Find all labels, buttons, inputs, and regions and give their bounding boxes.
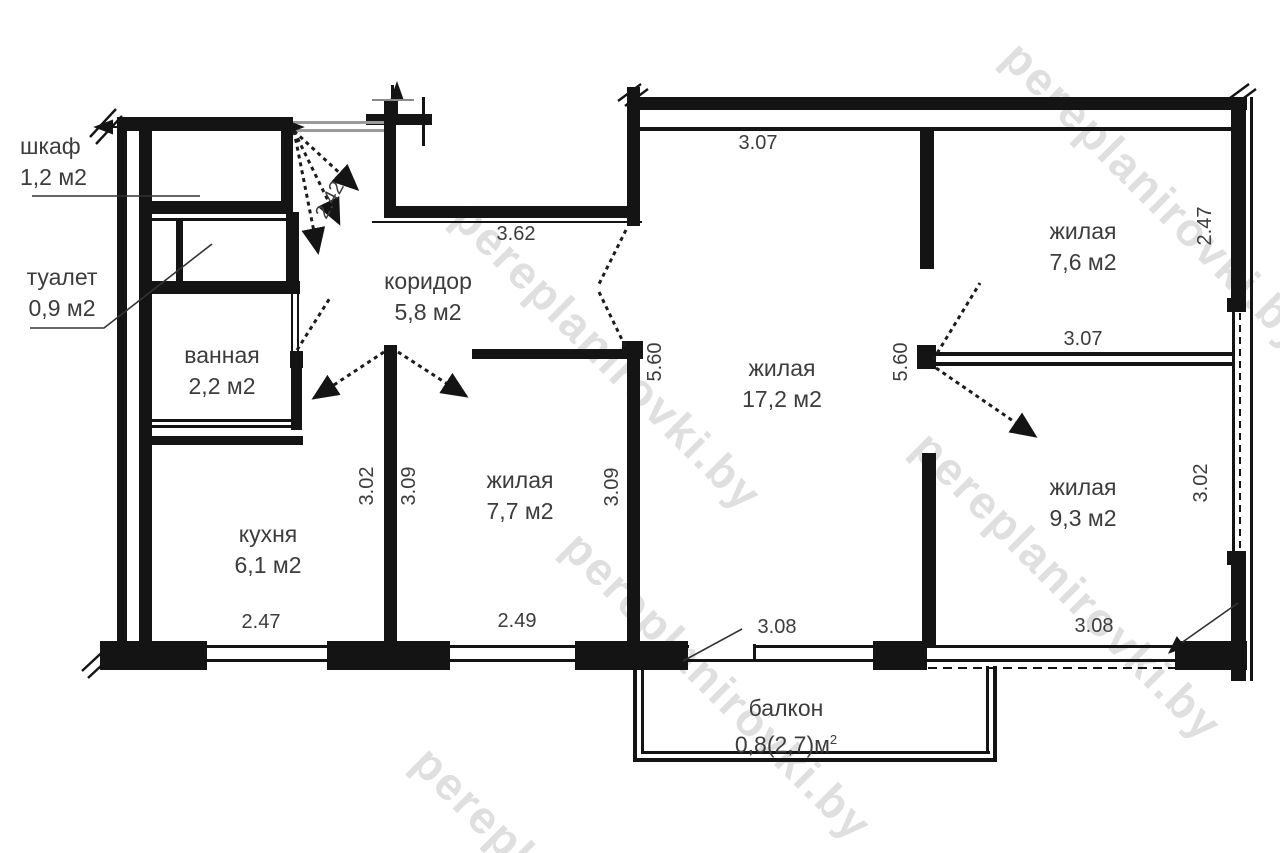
room-area: 5,8 м2 — [363, 297, 493, 328]
dim-room17-top: 3.07 — [731, 131, 785, 155]
room-label-room-17-2: жилая 17,2 м2 — [712, 353, 852, 415]
room-label-room-7-7: жилая 7,7 м2 — [455, 465, 585, 527]
room-area: 7,7 м2 — [455, 496, 585, 527]
dim-niche-width: 3.62 — [489, 222, 543, 246]
dim-room76-right: 2.47 — [1193, 199, 1217, 253]
room-area: 7,6 м2 — [1018, 247, 1148, 278]
room-area: 1,2 м2 — [20, 162, 140, 193]
floor-plan: pereplanirovki.by pereplanirovki.by pere… — [0, 0, 1280, 853]
dim-room77-right: 3.09 — [600, 460, 624, 514]
room-label-closet: шкаф 1,2 м2 — [20, 131, 140, 193]
room-label-room-9-3: жилая 9,3 м2 — [1018, 472, 1148, 534]
room-area: 17,2 м2 — [712, 384, 852, 415]
room-label-balcony: балкон 0,8(2,7)м2 — [716, 693, 856, 761]
room-area: 0,8(2,7)м2 — [716, 724, 856, 761]
room-area: 0,9 м2 — [6, 293, 118, 324]
room-name: жилая — [455, 465, 585, 496]
room-name: туалет — [6, 262, 118, 293]
dim-room93-right: 3.02 — [1189, 456, 1213, 510]
dim-kitchen-bottom: 2.47 — [234, 610, 288, 634]
room-name: жилая — [1018, 216, 1148, 247]
plan-linework — [0, 0, 1280, 853]
room-name: жилая — [1018, 472, 1148, 503]
dim-room76-width: 3.07 — [1056, 327, 1110, 351]
room-label-room-7-6: жилая 7,6 м2 — [1018, 216, 1148, 278]
room-name: ванная — [157, 340, 287, 371]
room-name: балкон — [716, 693, 856, 724]
room-label-toilet: туалет 0,9 м2 — [6, 262, 118, 324]
room-label-bathroom: ванная 2,2 м2 — [157, 340, 287, 402]
dim-kitchen-right: 3.02 — [355, 459, 379, 513]
room-name: жилая — [712, 353, 852, 384]
room-name: кухня — [203, 519, 333, 550]
room-area: 2,2 м2 — [157, 371, 287, 402]
dim-room77-bottom: 2.49 — [490, 609, 544, 633]
room-area: 9,3 м2 — [1018, 503, 1148, 534]
room-label-kitchen: кухня 6,1 м2 — [203, 519, 333, 581]
dim-room17-bottom: 3.08 — [750, 615, 804, 639]
dim-room77-left: 3.09 — [397, 459, 421, 513]
dim-room93-bottom: 3.08 — [1067, 614, 1121, 638]
dim-depth-left: 5.60 — [643, 335, 667, 389]
room-name: шкаф — [20, 131, 140, 162]
room-label-corridor: коридор 5,8 м2 — [363, 266, 493, 328]
dim-depth-right: 5.60 — [889, 335, 913, 389]
room-area: 6,1 м2 — [203, 550, 333, 581]
room-name: коридор — [363, 266, 493, 297]
